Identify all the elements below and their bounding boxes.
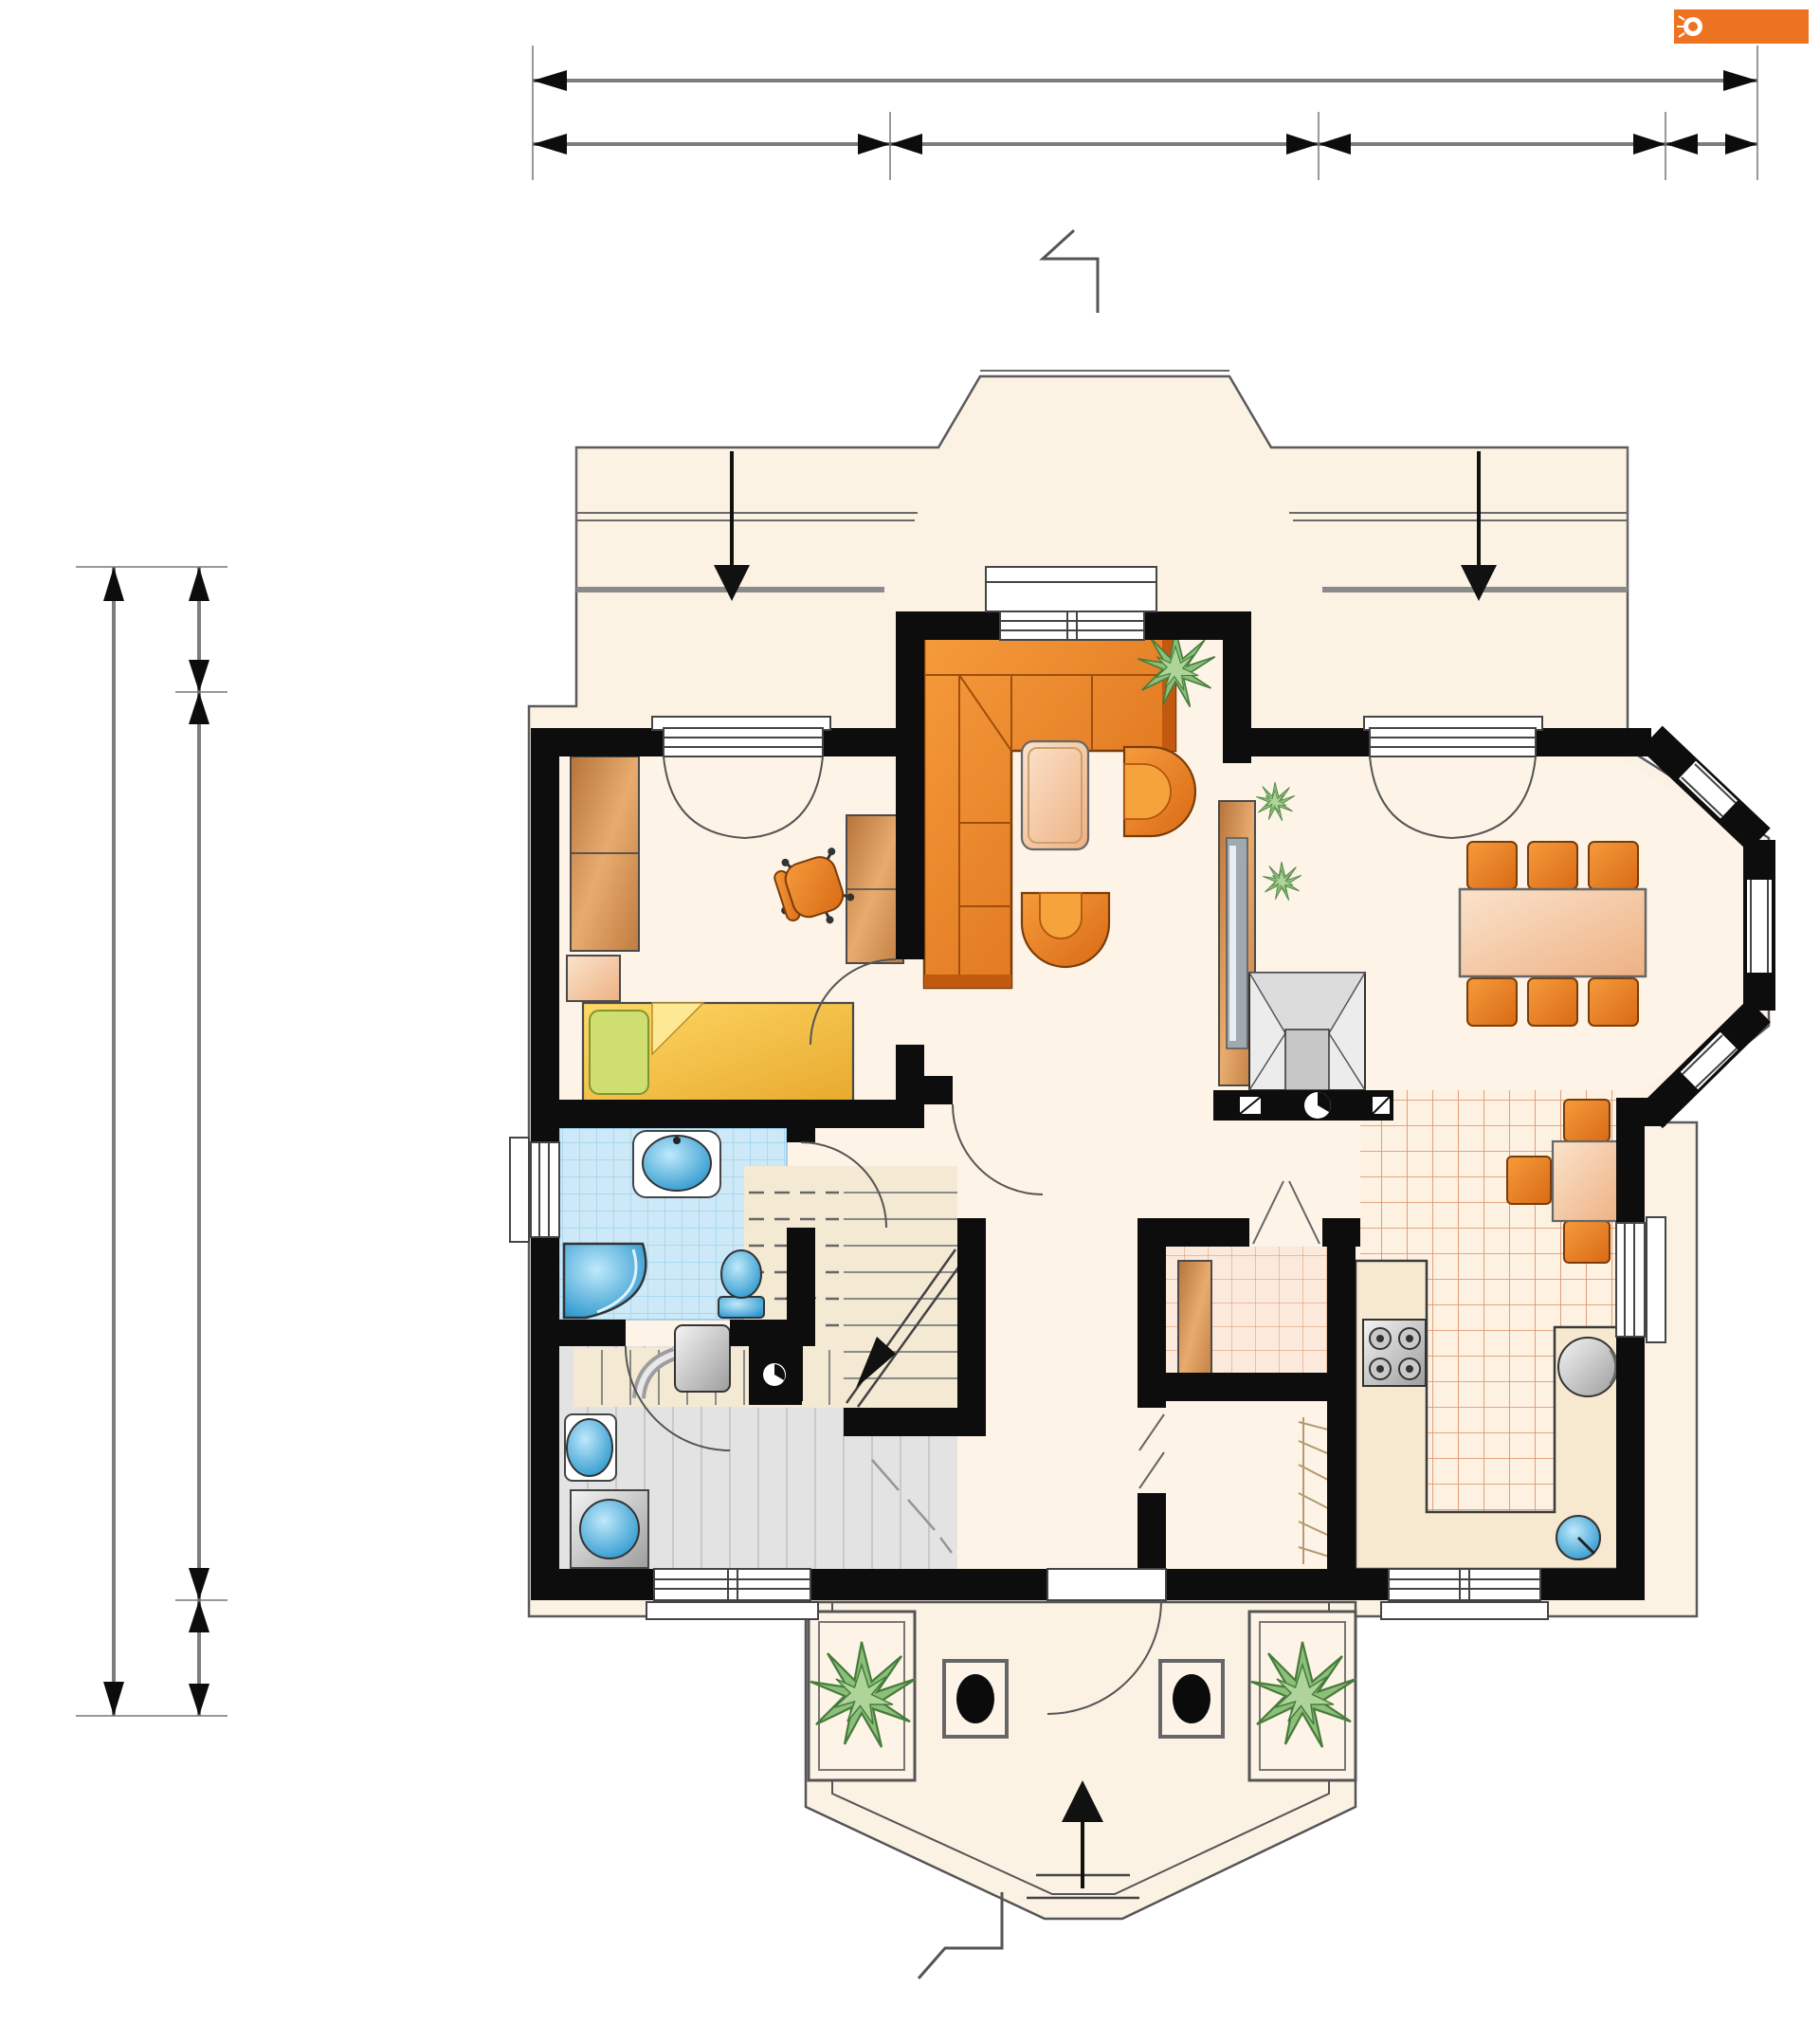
terrace-lamp <box>944 1661 1007 1737</box>
floor-plan-page <box>0 0 1820 2023</box>
kitchen-chair <box>1507 1157 1551 1204</box>
kitchen-chair <box>1564 1221 1610 1263</box>
dimension-top <box>533 46 1757 180</box>
bedside-cabinet <box>567 956 620 1001</box>
kitchen-chair <box>1564 1100 1610 1141</box>
dining-chair <box>1528 978 1577 1026</box>
dining-chair <box>1589 842 1638 889</box>
dining-table <box>1460 889 1646 976</box>
round-boiler <box>571 1490 648 1568</box>
terrace-planter <box>1249 1612 1356 1780</box>
terrace-planter <box>809 1612 916 1780</box>
dimension-left <box>76 567 227 1716</box>
dining-chair <box>1528 842 1577 889</box>
dining-chair <box>1467 978 1517 1026</box>
pillow <box>590 1011 648 1094</box>
terrace <box>806 1602 1356 1919</box>
floor-plan-drawing <box>0 0 1820 2023</box>
terrace-lamp <box>1160 1661 1223 1737</box>
armchair <box>1022 893 1109 967</box>
utility-sink <box>567 1419 612 1476</box>
dining-chair <box>1467 842 1517 889</box>
section-marker-top <box>1043 230 1098 313</box>
water-heater <box>1558 1338 1617 1396</box>
pantry-cupboard <box>1178 1261 1211 1389</box>
fireplace <box>1249 973 1365 1090</box>
archeton-logo <box>1674 9 1809 44</box>
kitchen-table <box>1553 1141 1621 1221</box>
bed <box>583 1003 853 1102</box>
gas-stove <box>1363 1320 1426 1386</box>
coffee-table <box>1022 741 1088 849</box>
dining-table-set <box>1460 842 1646 1026</box>
boiler <box>675 1325 730 1392</box>
toilet <box>719 1250 764 1318</box>
section-marker-bottom <box>919 1892 1002 1978</box>
dining-chair <box>1589 978 1638 1026</box>
